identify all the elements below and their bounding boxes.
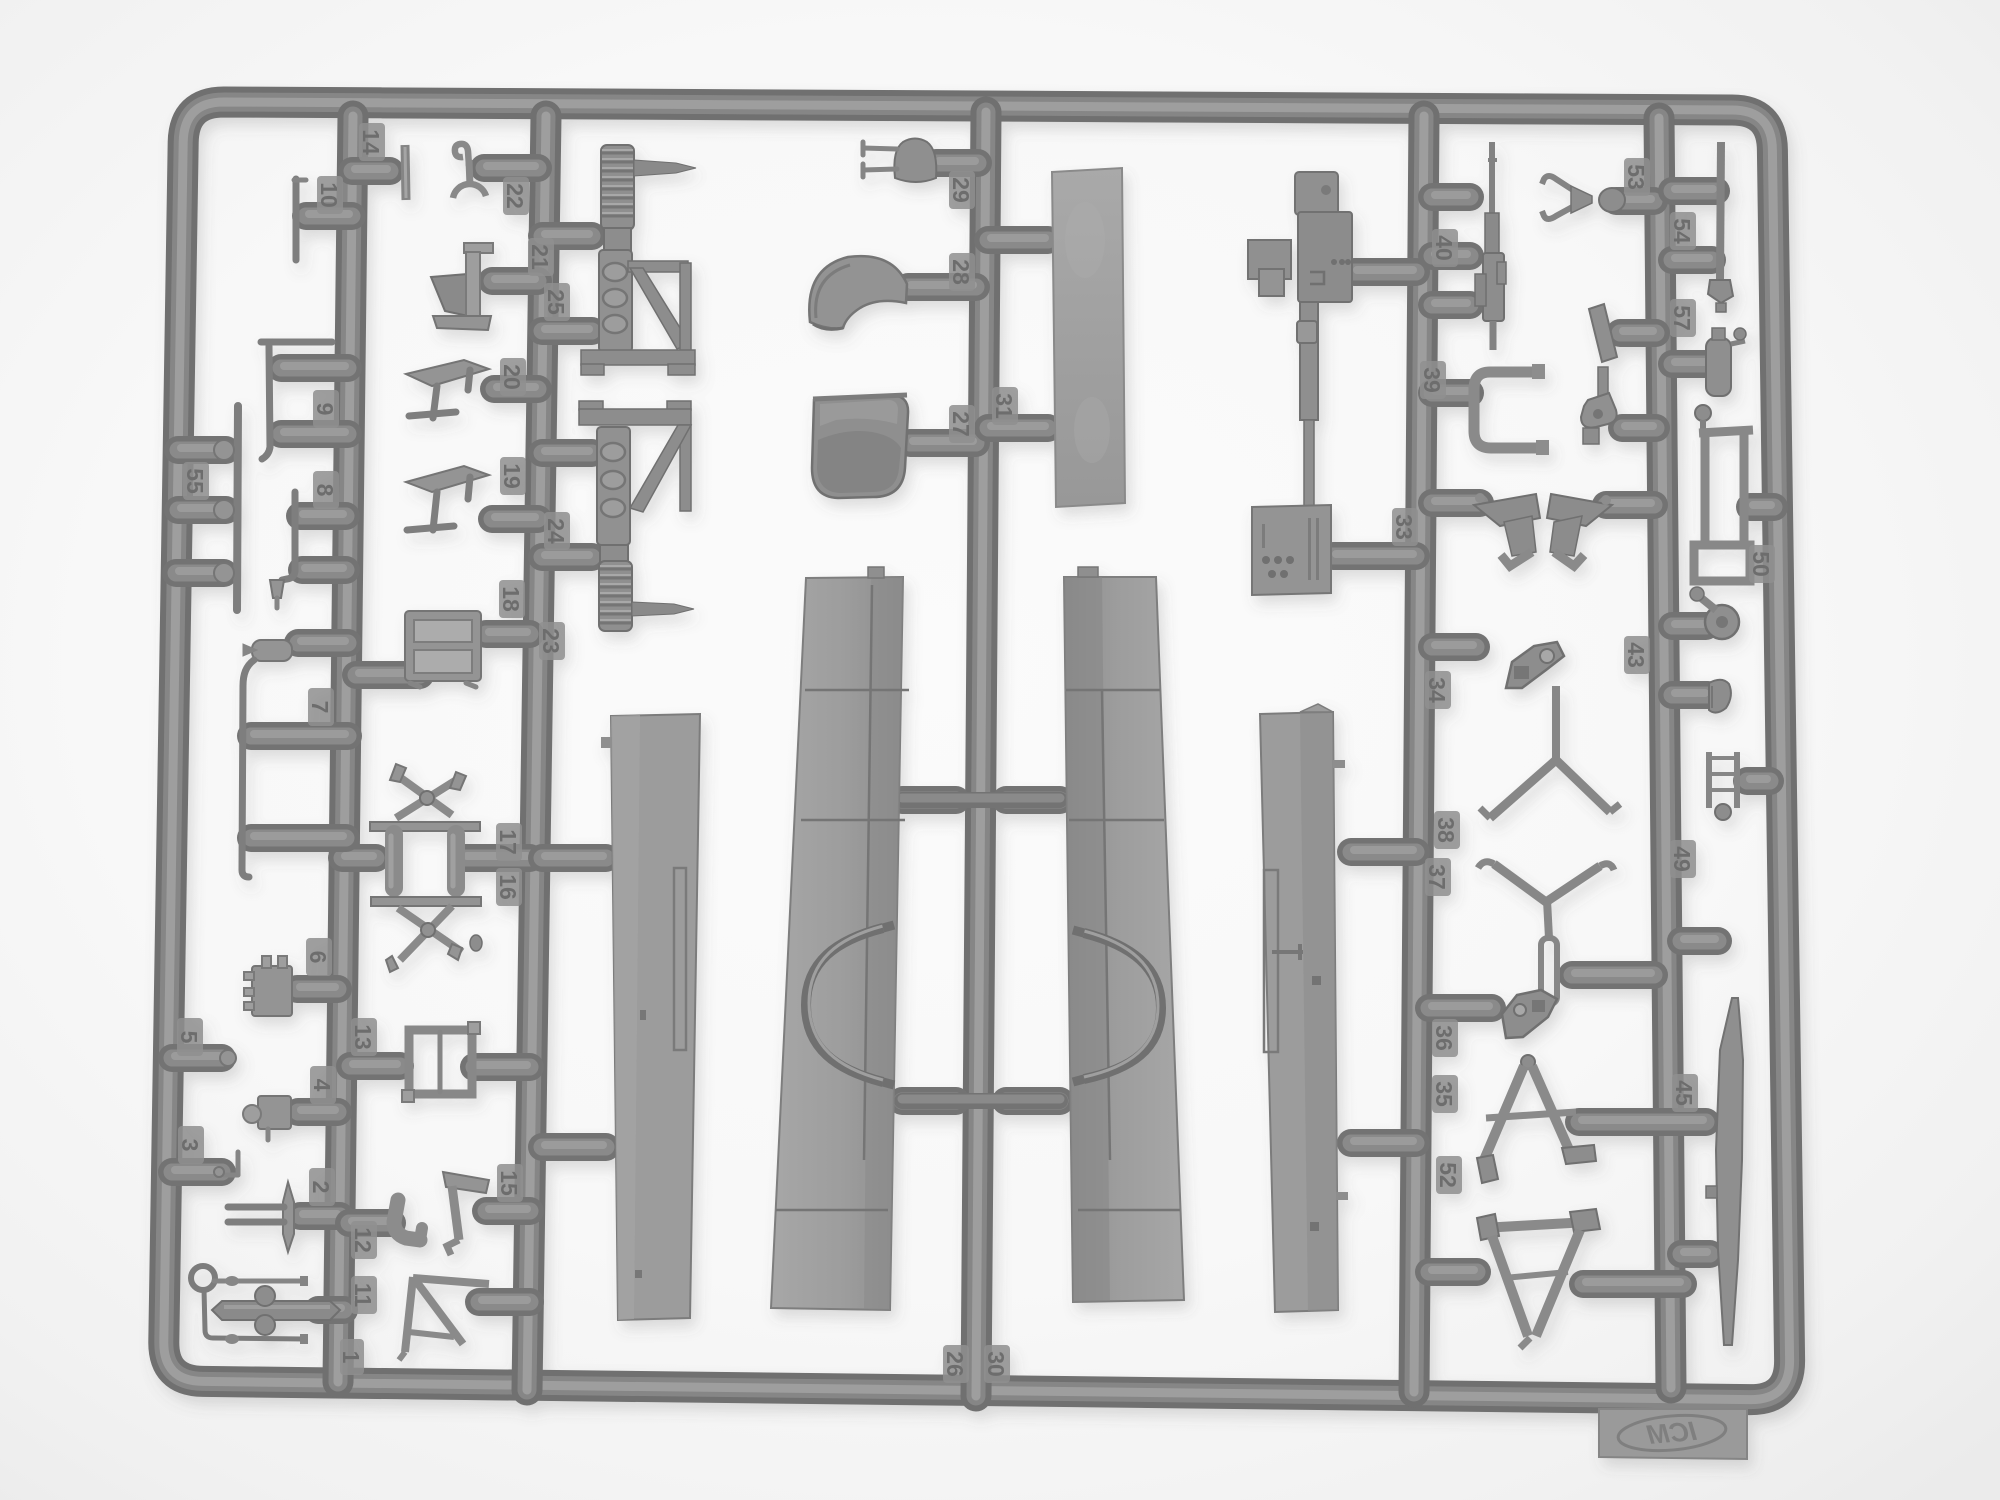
svg-text:40: 40 [1431,235,1457,261]
svg-text:18: 18 [498,586,524,612]
svg-text:10: 10 [316,182,342,208]
svg-text:49: 49 [1669,846,1695,872]
svg-text:26: 26 [942,1351,968,1377]
svg-text:16: 16 [495,874,521,900]
svg-text:53: 53 [1623,164,1649,190]
svg-text:3: 3 [177,1139,203,1152]
svg-text:5: 5 [176,1031,202,1044]
svg-text:57: 57 [1669,305,1695,331]
svg-text:14: 14 [358,129,384,155]
svg-text:31: 31 [991,393,1017,419]
svg-text:25: 25 [543,289,569,315]
svg-text:54: 54 [1669,218,1695,244]
svg-text:35: 35 [1431,1081,1457,1107]
svg-text:19: 19 [499,463,525,489]
svg-text:20: 20 [499,364,525,390]
svg-text:2: 2 [308,1181,334,1194]
svg-text:13: 13 [350,1024,376,1050]
svg-text:11: 11 [350,1283,376,1308]
svg-text:43: 43 [1623,642,1649,668]
svg-text:6: 6 [305,951,331,964]
svg-text:22: 22 [502,183,528,209]
svg-text:29: 29 [948,177,974,203]
svg-text:34: 34 [1424,677,1450,703]
svg-text:36: 36 [1431,1025,1457,1051]
svg-text:38: 38 [1433,817,1459,843]
svg-text:37: 37 [1424,864,1450,890]
svg-text:21: 21 [527,244,553,270]
svg-text:7: 7 [307,701,333,714]
svg-text:23: 23 [538,628,564,654]
svg-text:30: 30 [983,1351,1009,1377]
svg-text:39: 39 [1419,367,1445,393]
svg-text:45: 45 [1671,1080,1697,1106]
svg-text:1: 1 [338,1351,364,1364]
svg-text:50: 50 [1748,551,1774,577]
svg-text:28: 28 [948,259,974,285]
svg-text:17: 17 [495,829,521,855]
svg-text:4: 4 [309,1079,335,1092]
svg-text:9: 9 [312,403,338,416]
svg-text:24: 24 [543,518,569,544]
svg-text:52: 52 [1435,1162,1461,1188]
svg-text:8: 8 [312,484,338,497]
svg-text:33: 33 [1391,514,1417,540]
svg-text:55: 55 [182,468,208,494]
svg-text:15: 15 [496,1170,522,1196]
svg-text:27: 27 [948,411,974,437]
svg-text:12: 12 [350,1227,376,1253]
svg-text:ICM: ICM [1646,1416,1698,1450]
